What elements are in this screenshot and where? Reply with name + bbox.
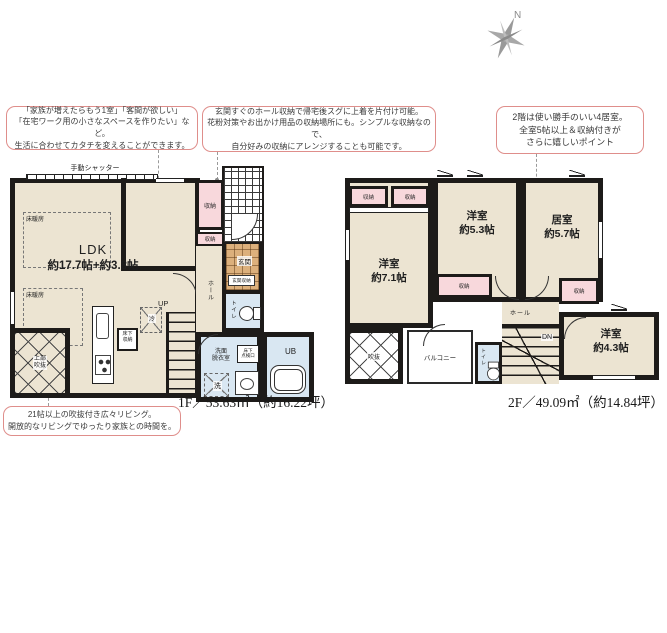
room-name: LDK bbox=[28, 242, 158, 259]
underfloor-storage: 床下 収納 bbox=[117, 328, 138, 351]
room-size: 約7.1帖 bbox=[351, 272, 427, 286]
callout-line: 自分好みの収納にアレンジすることも可能です。 bbox=[203, 141, 435, 153]
shutter-label: 手動シャッター bbox=[40, 163, 150, 173]
closet: 収納 bbox=[391, 186, 429, 207]
void-label: 上部 吹抜 bbox=[33, 356, 47, 370]
room-w71-label: 洋室 約7.1帖 bbox=[351, 258, 427, 285]
window-mark bbox=[156, 178, 184, 183]
f2-area-title: 2F／49.09㎡（約14.84坪） bbox=[508, 391, 664, 411]
callout-line: 花粉対策やお出かけ用品の収納場所にも。シンプルな収納なので、 bbox=[203, 117, 435, 140]
room-size: 約17.7帖+約3.8帖 bbox=[28, 259, 158, 274]
stairs-up bbox=[166, 312, 200, 396]
floor-heating-label: 床暖房 bbox=[26, 290, 44, 299]
genkan-label: 玄関 bbox=[237, 256, 252, 266]
room-w53-label: 洋室 約5.3帖 bbox=[439, 210, 515, 237]
toilet-label: トイレ bbox=[229, 300, 237, 320]
toilet-icon bbox=[486, 362, 500, 381]
closet: 収納 bbox=[559, 278, 599, 304]
floorplan-image: N 「家族が増えたらもう1室」「客間が欲しい」 「在宅ワーク用の小さなスペースを… bbox=[0, 0, 667, 633]
callout-line: 玄関すぐのホール収納で帰宅後スグに上着を片付け可能。 bbox=[203, 106, 435, 118]
kitchen-sink bbox=[96, 313, 109, 339]
stairs-dn-label: DN bbox=[541, 334, 553, 341]
toilet-icon bbox=[239, 305, 261, 321]
room-i57-label: 居室 約5.7帖 bbox=[525, 214, 599, 241]
callout-line: 全室5帖以上＆収納付きが bbox=[497, 124, 643, 137]
callout-line: 「家族が増えたらもう1室」「客間が欲しい」 bbox=[7, 105, 197, 117]
window-vent-mark bbox=[437, 170, 453, 177]
window-mark bbox=[593, 375, 635, 380]
refrigerator-space: 冷 bbox=[140, 307, 162, 333]
callout-hall-storage: 玄関すぐのホール収納で帰宅後スグに上着を片付け可能。 花粉対策やお出かけ用品の収… bbox=[202, 106, 436, 152]
callout-line: 生活に合わせてカタチを変えることができます。 bbox=[7, 140, 197, 152]
bath-label: UB bbox=[285, 347, 296, 356]
closet-door-track bbox=[349, 207, 429, 213]
callout-2f-rooms: 2階は使い勝手のいい4居室。 全室5帖以上＆収納付きが さらに嬉しいポイント bbox=[496, 106, 644, 154]
stairs-up-label: UP bbox=[158, 299, 184, 309]
kitchen-counter bbox=[92, 306, 114, 384]
room-w43-label: 洋室 約4.3帖 bbox=[579, 328, 643, 355]
hall-1f: ホール bbox=[196, 246, 224, 334]
balcony-label: バルコニー bbox=[424, 352, 456, 362]
closet: 収納 bbox=[436, 274, 492, 298]
void-above-area: 上部 吹抜 bbox=[10, 328, 70, 398]
window-mark bbox=[345, 230, 350, 260]
callout-line: 21帖以上の吹抜付き広々リビング。 bbox=[4, 409, 180, 421]
window-mark bbox=[598, 222, 603, 258]
hall-storage: 収納 bbox=[196, 180, 224, 230]
compass-rose: N bbox=[484, 6, 532, 64]
washer-label: 洗 bbox=[213, 381, 222, 391]
genkan: 玄関 玄関収納 bbox=[222, 244, 264, 290]
front-door-arc bbox=[232, 214, 258, 240]
callout-flexible-space: 「家族が増えたらもう1室」「客間が欲しい」 「在宅ワーク用の小さなスペースを作り… bbox=[6, 106, 198, 150]
callout-line: 開放的なリビングでゆったり家族との時間を。 bbox=[4, 421, 180, 433]
hall-label: ホール bbox=[510, 308, 531, 317]
hall-storage-small: 収納 bbox=[196, 232, 224, 246]
room-size: 約4.3帖 bbox=[579, 342, 643, 356]
room-name: 洋室 bbox=[351, 258, 427, 272]
stairs-down bbox=[502, 324, 559, 384]
stove bbox=[95, 355, 111, 375]
room-name: 居室 bbox=[525, 214, 599, 228]
underfloor-inspection: 床下 点検口 bbox=[237, 345, 259, 363]
window-mark bbox=[10, 292, 15, 324]
shutter-symbol bbox=[26, 174, 158, 180]
floor-heating-label: 床暖房 bbox=[26, 214, 44, 223]
callout-line: 2階は使い勝手のいい4居室。 bbox=[497, 111, 643, 124]
floorplan-1f: 手動シャッター 床暖房 床暖房 LDK 約17.7帖+約3.8帖 上部 吹抜 床… bbox=[10, 166, 322, 408]
room-size: 約5.3帖 bbox=[439, 224, 515, 238]
callout-line: 「在宅ワーク用の小さなスペースを作りたい」など。 bbox=[7, 116, 197, 139]
room-name: 洋室 bbox=[579, 328, 643, 342]
void-2f: 吹抜 bbox=[345, 328, 403, 384]
refrigerator-label: 冷 bbox=[148, 314, 156, 323]
window-vent-mark bbox=[569, 170, 585, 177]
callout-living-void: 21帖以上の吹抜付き広々リビング。 開放的なリビングでゆったり家族との時間を。 bbox=[3, 406, 181, 436]
ldk-label: LDK 約17.7帖+約3.8帖 bbox=[28, 242, 158, 274]
closet: 収納 bbox=[349, 186, 388, 207]
room-name: 洋室 bbox=[439, 210, 515, 224]
void-label: 吹抜 bbox=[367, 352, 381, 361]
f1-area-title: 1F／53.63㎡（約16.22坪） bbox=[178, 391, 334, 411]
compass-north-label: N bbox=[514, 10, 521, 21]
entrance-porch bbox=[222, 166, 264, 244]
callout-line: さらに嬉しいポイント bbox=[497, 136, 643, 149]
toilet-room-2f: トイレ bbox=[475, 342, 502, 384]
room-size: 約5.7帖 bbox=[525, 228, 599, 242]
window-vent-mark bbox=[611, 304, 627, 311]
bathtub bbox=[270, 365, 306, 394]
genkan-storage: 玄関収納 bbox=[228, 275, 255, 286]
window-vent-mark bbox=[467, 170, 483, 177]
floorplan-2f: 洋室 約7.1帖 収納 収納 洋室 約5.3帖 収納 居室 約5.7帖 吹抜 バ… bbox=[345, 166, 663, 408]
toilet-room-1f: トイレ bbox=[222, 290, 264, 332]
hall-label: ホール bbox=[206, 280, 215, 301]
